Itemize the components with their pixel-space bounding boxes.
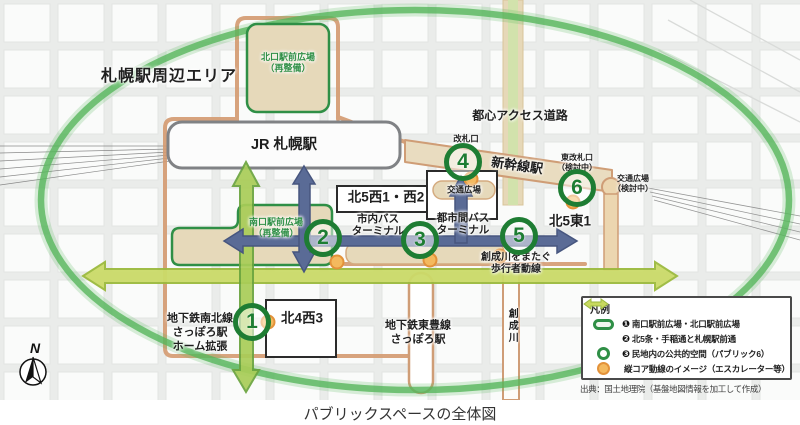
kita4-nishi-label: 北4西3	[281, 311, 323, 328]
legend-num-2: ❷	[622, 334, 630, 345]
map-canvas: 札幌駅周辺エリア 北口駅前広場 （再整備） JR 札幌駅 都心アクセス道路 改札…	[0, 0, 800, 400]
access-road-label: 都心アクセス道路	[472, 109, 567, 124]
namboku-line-label: 地下鉄南北線 さっぽろ駅 ホーム拡張	[167, 312, 233, 353]
compass-north-label: N	[30, 340, 40, 356]
legend-label-4: 縦コア動線のイメージ（エスカレーター等）	[624, 364, 790, 374]
legend-label-1: 南口駅前広場・北口駅前広場	[632, 319, 740, 329]
intercity-bus-terminal-label: 都市間バス ターミナル	[437, 212, 490, 236]
marker-1: 1	[233, 303, 271, 341]
south-plaza-label: 南口駅前広場 （再整備）	[249, 217, 303, 240]
legend-row-public-spaces: ❸民地内の公共的空間（パブリック6）	[590, 347, 785, 362]
kita4-nishi-block	[266, 300, 336, 357]
sosei-river-label: 創成川	[505, 308, 518, 344]
public-space-overview-figure: 札幌駅周辺エリア 北口駅前広場 （再整備） JR 札幌駅 都心アクセス道路 改札…	[0, 0, 800, 425]
plaza-outline-icon	[590, 319, 617, 330]
north-plaza-label: 北口駅前広場 （再整備）	[261, 52, 315, 75]
kita5-higashi-label: 北5東1	[549, 214, 591, 231]
east-plaza-corridor	[604, 194, 618, 270]
legend-row-axes: ❷北5条・手稲通と札幌駅前通	[590, 332, 785, 347]
sosei-crossing-label: 創成川をまたぐ 歩行者動線	[481, 252, 551, 276]
marker-5: 5	[500, 217, 538, 255]
transport-plaza-label: 交通広場	[447, 185, 481, 196]
marker-6: 6	[558, 169, 596, 207]
legend-row-plazas: ❶南口駅前広場・北口駅前広場	[590, 317, 785, 332]
toho-line-label: 地下鉄東豊線 さっぽろ駅	[385, 319, 451, 347]
legend-num-3: ❸	[622, 349, 630, 360]
marker-4: 4	[444, 143, 482, 181]
legend-label-3: 民地内の公共的空間（パブリック6）	[632, 349, 769, 359]
jr-station-label: JR 札幌駅	[251, 136, 317, 154]
legend-num-1: ❶	[622, 319, 630, 330]
marker-2: 2	[304, 219, 342, 257]
legend-box: 凡例 ❶南口駅前広場・北口駅前広場 ❷北5条・手稲通と札幌駅前通 ❸民地内の公共…	[581, 296, 792, 380]
marker-3: 3	[401, 221, 439, 259]
source-note: 出典：国土地理院（基盤地図情報を加工して作成）	[580, 383, 794, 395]
legend-title: 凡例	[590, 301, 785, 316]
legend-label-2: 北5条・手稲通と札幌駅前通	[632, 334, 736, 344]
figure-caption: パブリックスペースの全体図	[0, 403, 800, 424]
transport-plaza-planned-label: 交通広場 （検討中）	[613, 174, 653, 194]
area-label: 札幌駅周辺エリア	[101, 67, 237, 87]
green-circle-icon	[590, 347, 617, 360]
orange-circle-icon	[590, 362, 617, 375]
kita5-nishi-label: 北5西1・西2	[348, 190, 425, 207]
city-bus-terminal-label: 市内バス ターミナル	[352, 213, 405, 237]
legend-row-vertical-core: 縦コア動線のイメージ（エスカレーター等）	[590, 361, 785, 376]
